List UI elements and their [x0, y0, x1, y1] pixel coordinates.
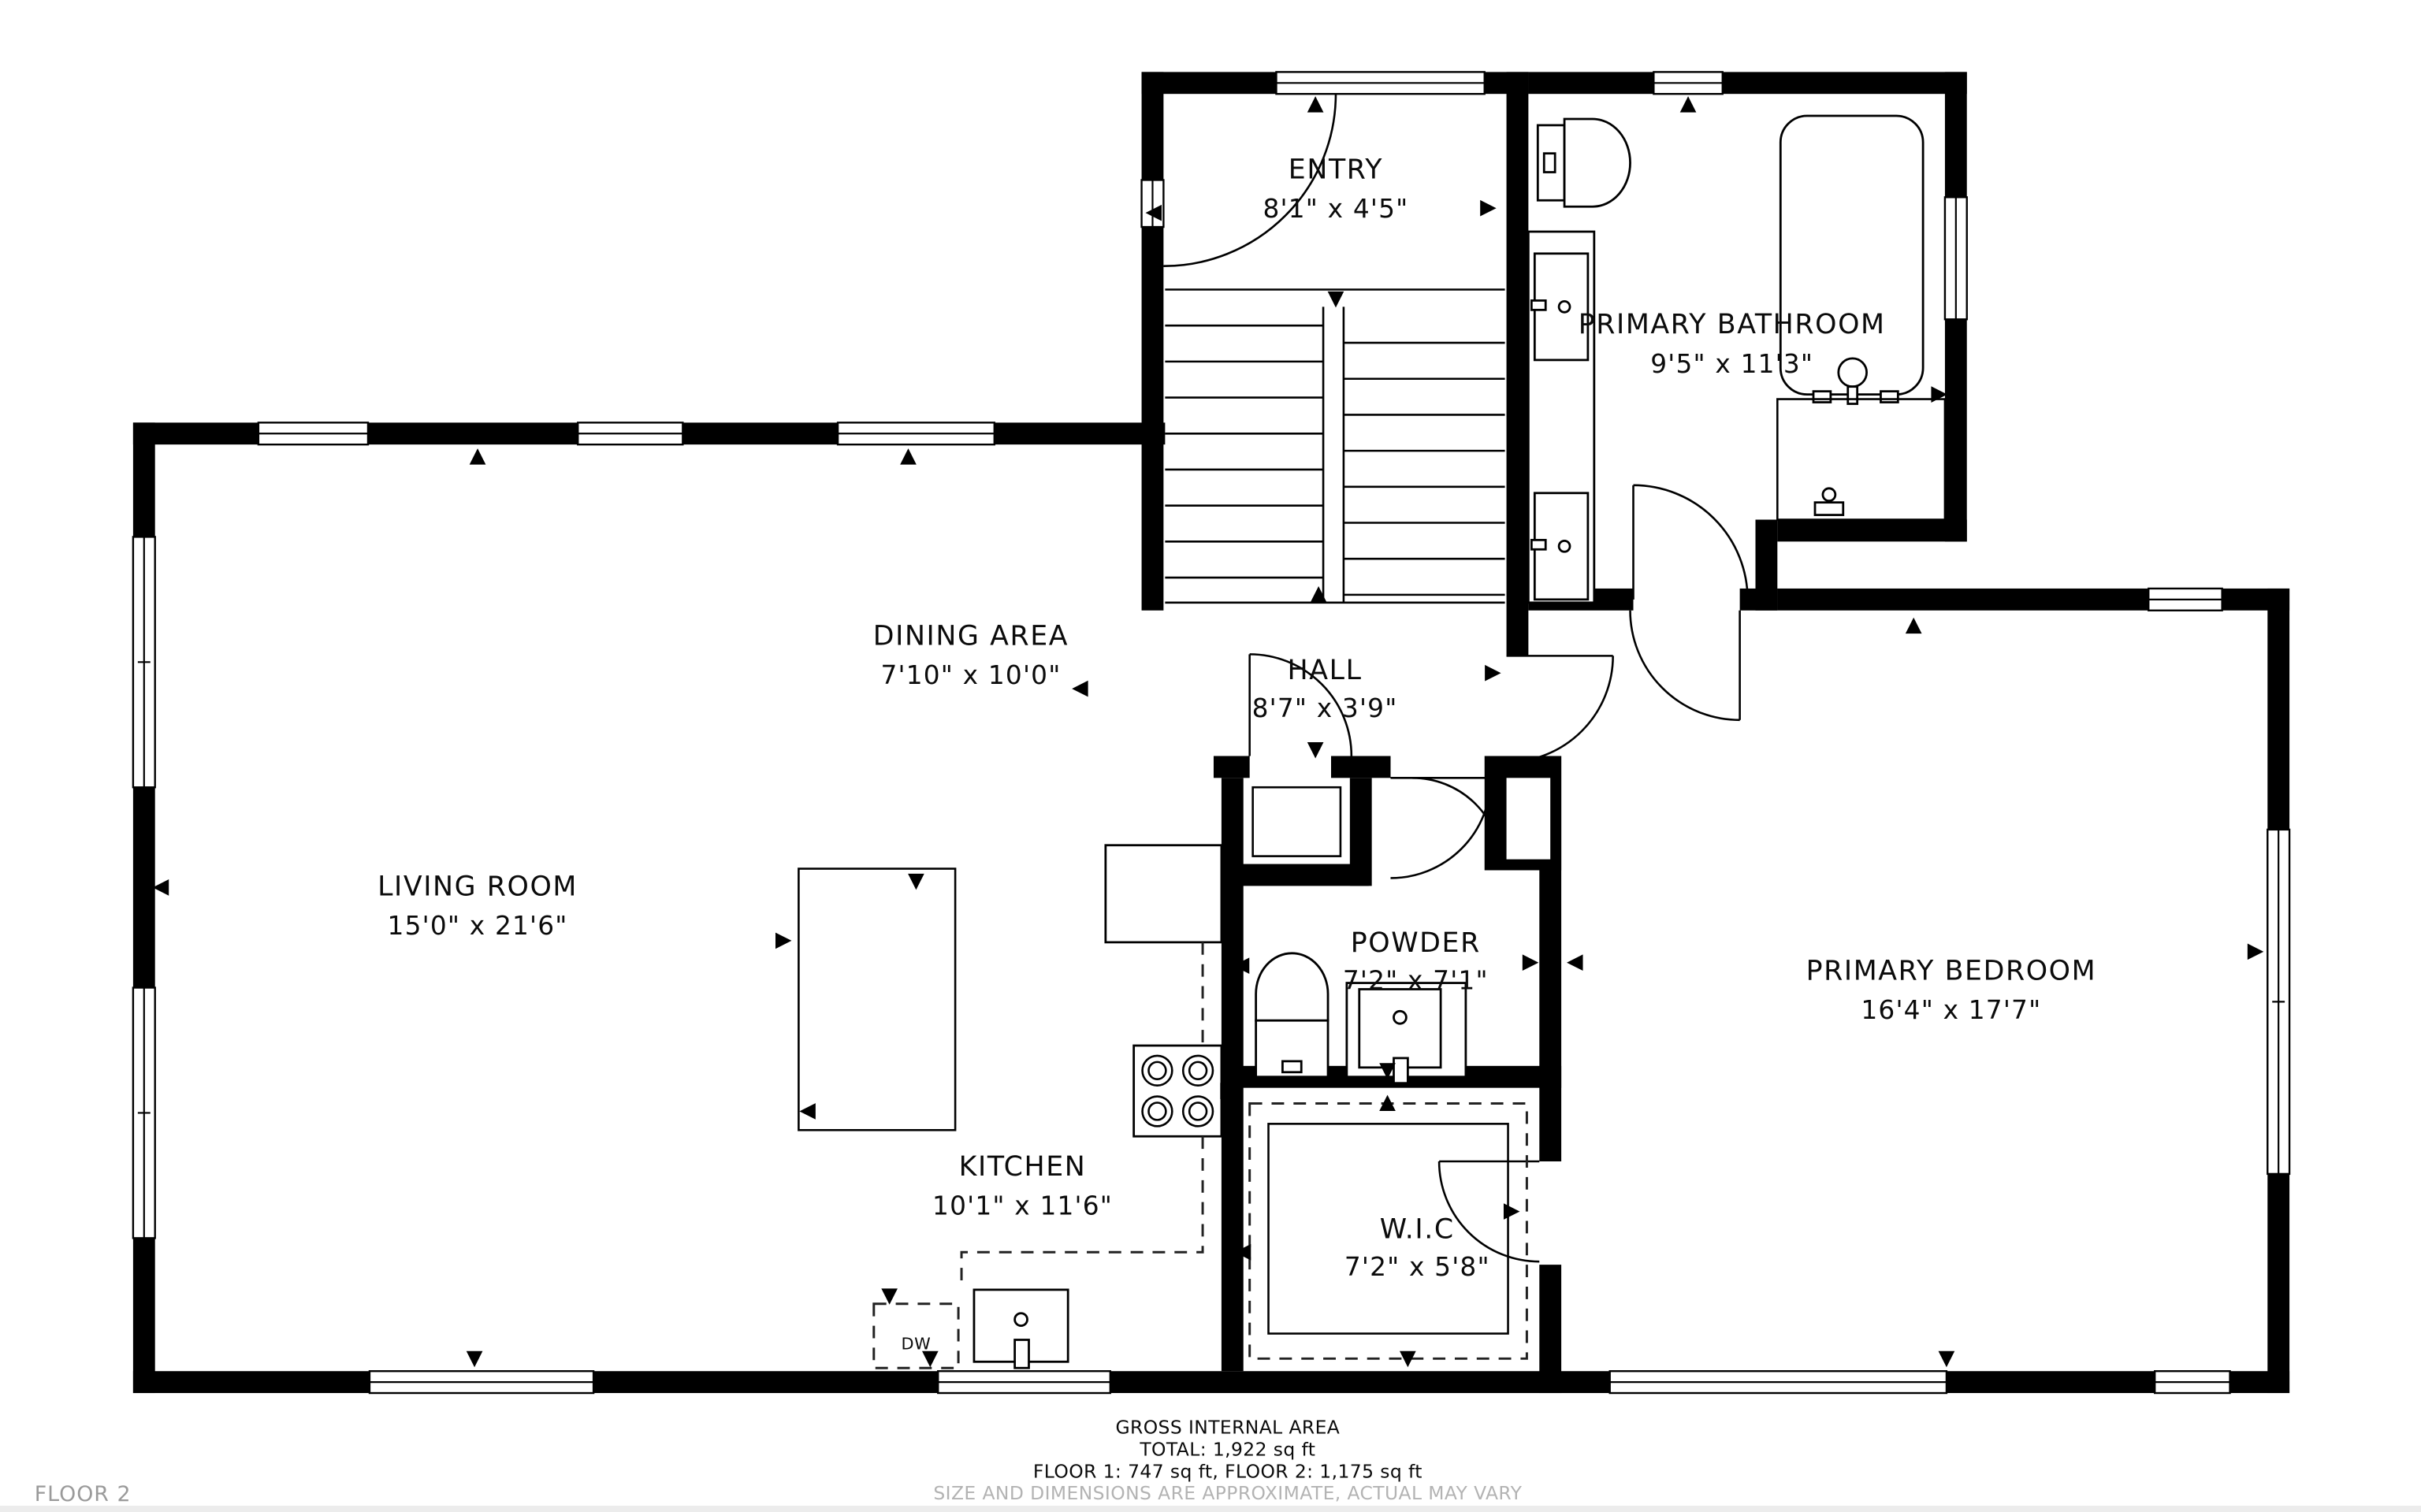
floorplan-svg: DW: [0, 0, 2421, 1512]
room-label-kitchen: KITCHEN: [959, 1151, 1087, 1183]
room-label-hall: HALL: [1288, 655, 1363, 686]
marker-icon: [1307, 742, 1324, 758]
room-dims-wic: 7'2" x 5'8": [1344, 1252, 1490, 1282]
stair-treads: [1165, 325, 1504, 595]
marker-icon: [799, 1103, 815, 1120]
footer-gross-area: GROSS INTERNAL AREA: [1115, 1417, 1340, 1439]
window-icon: [838, 422, 995, 444]
marker-icon: [1307, 96, 1324, 112]
dishwasher-label: DW: [901, 1334, 931, 1353]
marker-icon: [1480, 200, 1496, 217]
room-dims-primary-bathroom: 9'5" x 11'3": [1650, 349, 1813, 379]
footer-total: TOTAL: 1,922 sq ft: [1139, 1438, 1315, 1460]
marker-icon: [2248, 943, 2263, 960]
closet-shelf: [1253, 787, 1341, 856]
marker-icon: [153, 879, 169, 896]
room-label-powder: POWDER: [1351, 927, 1481, 959]
marker-icon: [900, 448, 917, 464]
stove-icon: [1134, 1046, 1222, 1136]
room-label-primary-bathroom: PRIMARY BATHROOM: [1579, 309, 1886, 340]
sink-icon: [974, 1290, 1068, 1368]
toilet-icon: [1538, 119, 1630, 206]
door-arc-wic: [1439, 1161, 1539, 1261]
marker-icon: [1939, 1351, 1955, 1367]
door-arc-bedroom: [1507, 656, 1613, 762]
window-icon: [133, 988, 155, 1239]
marker-icon: [1504, 1203, 1519, 1220]
window-icon: [133, 537, 155, 787]
sink-icon: [1347, 983, 1466, 1083]
window-icon: [1276, 72, 1484, 94]
floor-label: FLOOR 2: [35, 1482, 132, 1506]
window-icon: [258, 422, 368, 444]
window-icon: [1610, 1371, 1947, 1393]
toilet-icon: [1256, 953, 1328, 1077]
room-label-primary-bedroom: PRIMARY BEDROOM: [1806, 956, 2097, 987]
window-icon: [370, 1371, 593, 1393]
room-label-dining-area: DINING AREA: [873, 620, 1069, 652]
room-dims-powder: 7'2" x 7'1": [1343, 965, 1489, 995]
marker-icon: [1485, 665, 1501, 682]
shower-icon: [1777, 399, 1945, 520]
room-dims-dining-area: 7'10" x 10'0": [880, 660, 1061, 690]
door-arc-powder: [1391, 778, 1491, 878]
marker-icon: [1328, 292, 1344, 307]
window-icon: [938, 1371, 1110, 1393]
room-label-living-room: LIVING ROOM: [377, 871, 578, 902]
marker-icon: [467, 1351, 483, 1367]
window-icon: [2267, 830, 2289, 1174]
window-icon: [578, 422, 682, 444]
window-icon: [2155, 1371, 2229, 1393]
room-dims-kitchen: 10'1" x 11'6": [932, 1191, 1113, 1221]
room-label-wic: W.I.C: [1380, 1213, 1455, 1245]
footer-disclaimer: SIZE AND DIMENSIONS ARE APPROXIMATE, ACT…: [933, 1482, 1522, 1504]
fridge-icon: [1106, 845, 1222, 942]
window-icon: [2148, 589, 2222, 611]
door-arc-bathroom: [1634, 485, 1748, 600]
floorplan-page: DW: [0, 0, 2421, 1512]
marker-icon: [775, 933, 791, 949]
footer: GROSS INTERNAL AREA TOTAL: 1,922 sq ft F…: [0, 1417, 2421, 1512]
marker-icon: [881, 1288, 898, 1304]
dishwasher: DW: [874, 1304, 958, 1368]
page-bottom-strip: [0, 1506, 2421, 1512]
staircase: [1165, 290, 1504, 603]
marker-icon: [922, 1351, 939, 1367]
marker-icon: [1523, 954, 1538, 971]
room-label-entry: ENTRY: [1289, 154, 1383, 185]
window-icon: [1653, 72, 1722, 94]
marker-icon: [1072, 681, 1088, 697]
room-dims-hall: 8'7" x 3'9": [1252, 693, 1398, 723]
window-icon: [1945, 197, 1967, 319]
marker-icon: [1567, 954, 1582, 971]
door-arc-landing: [1631, 611, 1740, 720]
room-dims-living-room: 15'0" x 21'6": [388, 911, 568, 941]
vanity-icon: [1528, 232, 1594, 603]
marker-icon: [908, 874, 924, 890]
marker-icon: [1906, 618, 1922, 633]
marker-icon: [1680, 96, 1697, 112]
footer-floors: FLOOR 1: 747 sq ft, FLOOR 2: 1,175 sq ft: [1033, 1460, 1422, 1482]
room-dims-primary-bedroom: 16'4" x 17'7": [1861, 995, 2041, 1025]
room-dims-entry: 8'1" x 4'5": [1263, 194, 1409, 224]
kitchen-island: [798, 869, 955, 1131]
windows: [133, 72, 2289, 1393]
marker-icon: [470, 448, 486, 464]
